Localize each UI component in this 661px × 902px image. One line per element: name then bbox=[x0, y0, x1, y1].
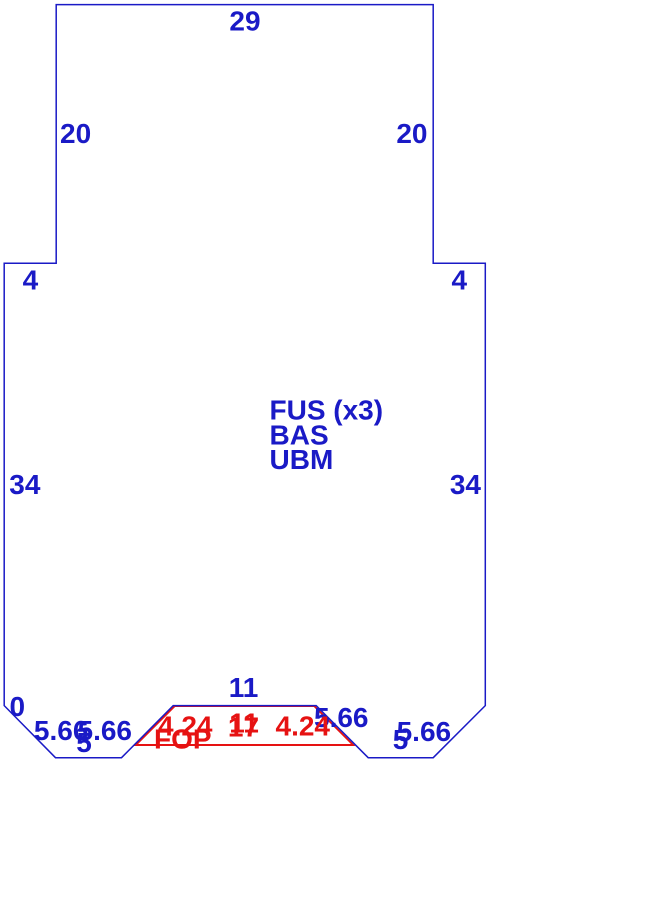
svg-text:UBM: UBM bbox=[270, 444, 334, 475]
svg-text:34: 34 bbox=[9, 469, 41, 500]
svg-text:29: 29 bbox=[229, 5, 260, 36]
svg-text:FOP: FOP bbox=[154, 723, 212, 754]
svg-text:5: 5 bbox=[393, 724, 409, 755]
svg-text:34: 34 bbox=[450, 469, 482, 500]
svg-text:20: 20 bbox=[60, 118, 91, 149]
svg-text:4: 4 bbox=[452, 265, 468, 296]
svg-text:5: 5 bbox=[76, 727, 92, 758]
svg-text:17: 17 bbox=[228, 711, 259, 742]
svg-text:4: 4 bbox=[23, 265, 39, 296]
svg-text:0: 0 bbox=[10, 691, 26, 722]
svg-text:11: 11 bbox=[229, 672, 259, 703]
svg-text:4.24: 4.24 bbox=[276, 711, 331, 742]
svg-text:20: 20 bbox=[396, 118, 427, 149]
